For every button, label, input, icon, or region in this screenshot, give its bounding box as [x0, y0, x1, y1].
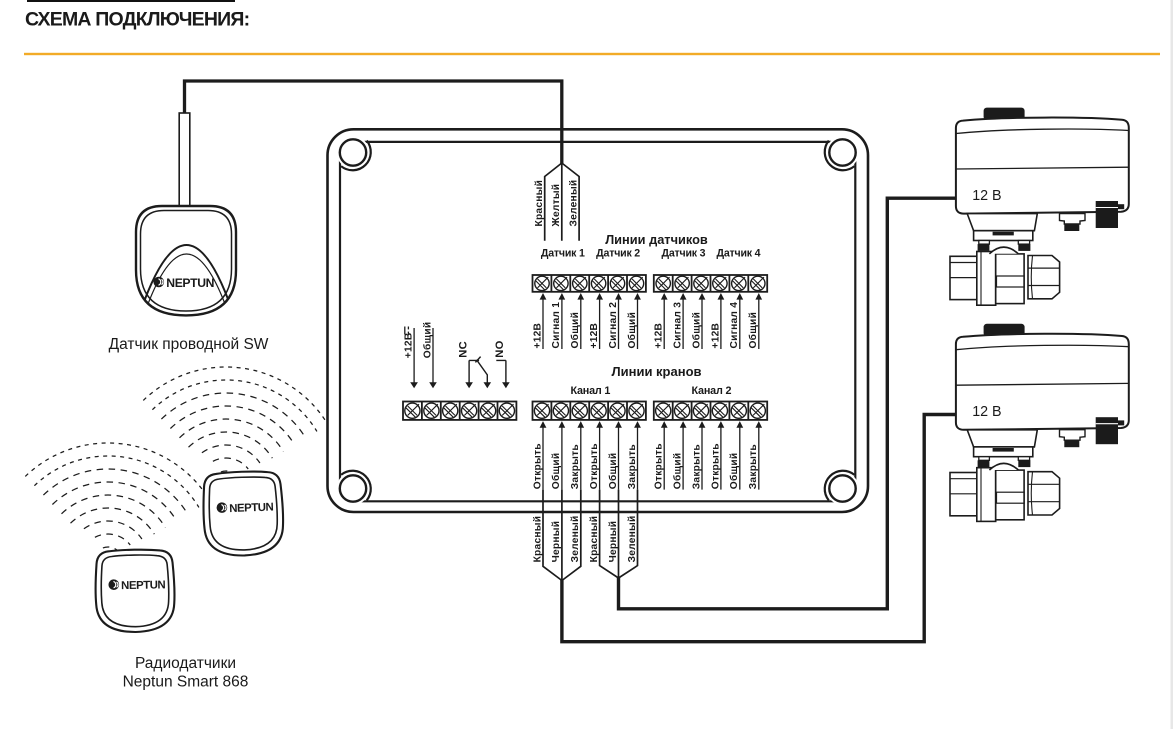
svg-text:Канал 2: Канал 2 [692, 385, 732, 397]
svg-text:Сигнал 4: Сигнал 4 [729, 302, 740, 349]
svg-text:Датчик 2: Датчик 2 [596, 248, 640, 260]
svg-text:Зеленый: Зеленый [627, 515, 638, 562]
svg-text:NEPTUN: NEPTUN [166, 276, 214, 290]
svg-text:Открыть: Открыть [710, 443, 721, 489]
svg-text:Датчик 1: Датчик 1 [541, 248, 585, 260]
svg-text:Датчик 3: Датчик 3 [661, 248, 705, 260]
svg-text:NEPTUN: NEPTUN [229, 502, 274, 516]
svg-text:Закрыть: Закрыть [748, 444, 759, 489]
svg-text:Красный: Красный [532, 516, 543, 563]
svg-text:Закрыть: Закрыть [570, 444, 581, 489]
svg-text:Общий: Общий [569, 312, 581, 349]
svg-text:+12В: +12В [532, 323, 543, 349]
svg-text:Открыть: Открыть [654, 443, 665, 489]
svg-text:Красный: Красный [589, 516, 600, 563]
svg-text:Красный: Красный [534, 180, 545, 227]
svg-text:12 В: 12 В [972, 404, 1001, 420]
svg-text:Радиодатчики: Радиодатчики [135, 655, 236, 672]
svg-text:+12В: +12В [710, 323, 721, 349]
svg-text:+12В: +12В [589, 323, 600, 349]
svg-text:Общий: Общий [626, 312, 638, 349]
svg-text:+12В: +12В [403, 333, 414, 359]
svg-text:+12В: +12В [654, 323, 665, 349]
svg-text:Зеленый: Зеленый [570, 515, 581, 562]
svg-text:Общий: Общий [607, 453, 619, 490]
svg-text:Черный: Черный [551, 521, 562, 563]
svg-text:Линии кранов: Линии кранов [611, 364, 701, 379]
svg-text:Канал 1: Канал 1 [570, 385, 610, 397]
svg-text:Общий: Общий [421, 322, 433, 359]
svg-text:NO: NO [494, 340, 506, 357]
svg-text:Сигнал 1: Сигнал 1 [551, 302, 562, 349]
svg-text:Датчик проводной SW: Датчик проводной SW [109, 336, 269, 353]
svg-text:Общий: Общий [672, 453, 684, 490]
svg-text:Закрыть: Закрыть [627, 444, 638, 489]
svg-text:Общий: Общий [747, 312, 759, 349]
svg-text:Общий: Общий [690, 312, 702, 349]
svg-text:Линии датчиков: Линии датчиков [605, 232, 708, 247]
svg-text:Открыть: Открыть [589, 443, 600, 489]
svg-text:Открыть: Открыть [532, 443, 543, 489]
svg-text:Датчик 4: Датчик 4 [716, 248, 760, 260]
svg-text:Общий: Общий [728, 453, 740, 490]
svg-text:Сигнал 2: Сигнал 2 [608, 302, 619, 349]
svg-text:Сигнал 3: Сигнал 3 [673, 302, 684, 349]
svg-text:СХЕМА ПОДКЛЮЧЕНИЯ:: СХЕМА ПОДКЛЮЧЕНИЯ: [25, 9, 249, 31]
svg-text:Желтый: Желтый [551, 184, 562, 228]
svg-text:NC: NC [458, 341, 470, 358]
svg-text:Закрыть: Закрыть [691, 444, 702, 489]
svg-text:12 В: 12 В [972, 188, 1001, 204]
svg-text:Общий: Общий [550, 453, 562, 490]
svg-text:Зеленый: Зеленый [569, 180, 580, 227]
svg-text:Черный: Черный [608, 521, 619, 563]
svg-text:Neptun Smart 868: Neptun Smart 868 [123, 674, 249, 691]
svg-text:NEPTUN: NEPTUN [121, 579, 166, 592]
